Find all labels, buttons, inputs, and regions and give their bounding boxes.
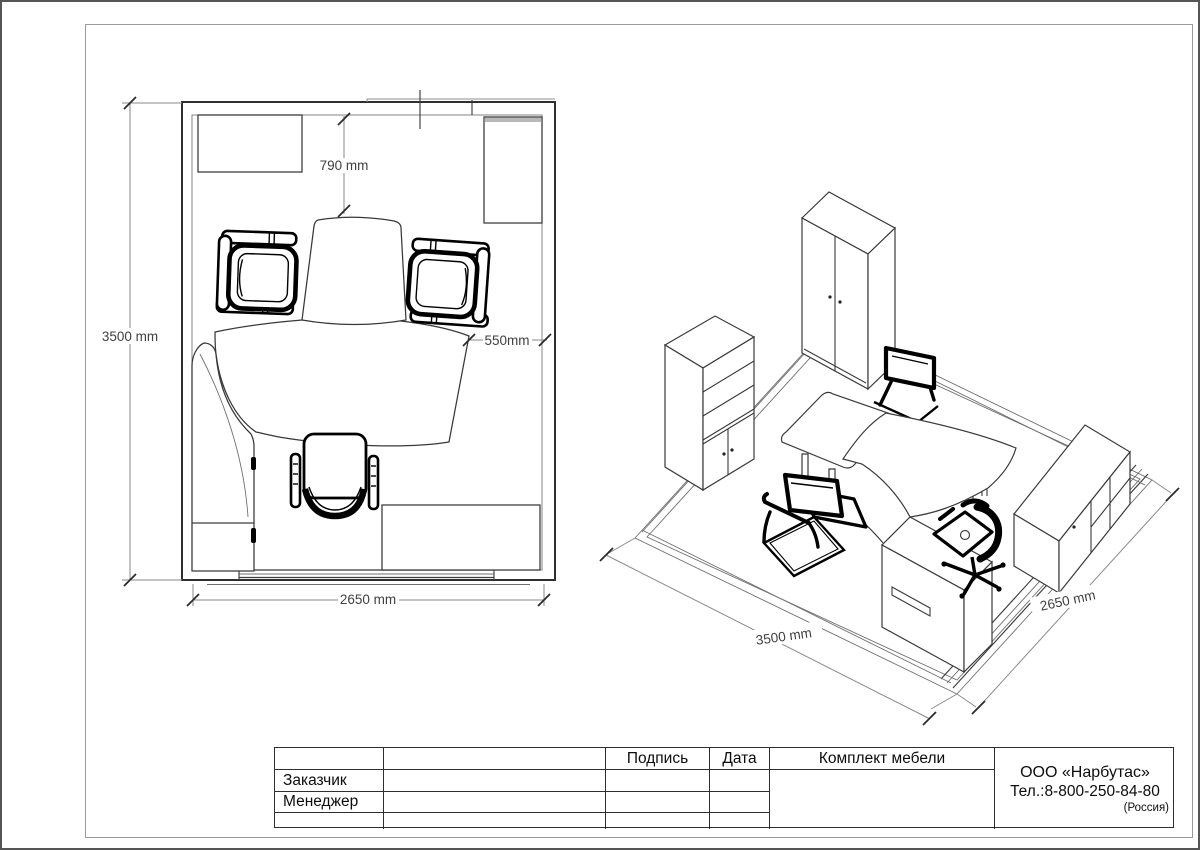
titleblock-cell-empty — [384, 748, 606, 770]
plan-dim-width-label: 2650 mm — [340, 592, 396, 607]
signature-header: Подпись — [606, 748, 710, 770]
plan-desk — [215, 318, 469, 446]
iso-wardrobe — [802, 192, 895, 389]
bookshelf-handle — [730, 448, 733, 451]
furniture-set-cell — [770, 770, 995, 829]
wardrobe-handle — [828, 295, 831, 298]
plan-dim-height-label: 3500 mm — [102, 329, 158, 344]
empty-row-cell — [275, 813, 384, 829]
date-header: Дата — [710, 748, 770, 770]
isometric-view: 3500 mm 2650 mm — [600, 192, 1179, 725]
plan-dim-clearance-label: 550mm — [484, 333, 529, 348]
credenza-handle — [1072, 525, 1075, 528]
empty-row-cell — [606, 813, 710, 829]
plan-cabinet-top-right — [484, 117, 542, 223]
iso-visitor-chair-front — [764, 475, 866, 576]
furniture-set-header: Комплект мебели — [770, 748, 995, 770]
customer-value-cell — [384, 770, 606, 792]
plan-dim-table-label: 790 mm — [320, 158, 369, 173]
drawing-canvas: 3500 mm 2650 mm 790 mm — [2, 2, 1200, 850]
company-country: (Россия) — [1124, 802, 1171, 814]
empty-row-cell — [710, 813, 770, 829]
plan-cabinet-handle — [251, 457, 256, 470]
customer-label: Заказчик — [275, 770, 384, 792]
manager-label: Менеджер — [275, 792, 384, 813]
plan-cabinet-top-left — [198, 115, 302, 172]
wardrobe-handle — [838, 300, 841, 303]
plan-credenza — [382, 505, 540, 570]
title-block: Подпись Дата Комплект мебели ООО «Нарбут… — [274, 747, 1174, 828]
manager-date-cell — [710, 792, 770, 813]
iso-bookshelf — [665, 316, 754, 490]
iso-credenza — [1014, 425, 1130, 593]
company-name: ООО «Нарбутас» — [1020, 764, 1150, 782]
customer-date-cell — [710, 770, 770, 792]
seat-button — [961, 531, 970, 540]
plan-visitor-chair-right — [406, 238, 493, 326]
empty-row-cell — [384, 813, 606, 829]
floor-plan: 3500 mm 2650 mm 790 mm — [101, 90, 555, 607]
plan-meeting-table — [302, 217, 406, 324]
titleblock-cell-empty — [275, 748, 384, 770]
manager-value-cell — [384, 792, 606, 813]
bookshelf-handle — [722, 452, 725, 455]
drawing-sheet: 3500 mm 2650 mm 790 mm — [0, 0, 1200, 850]
manager-signature-cell — [606, 792, 710, 813]
plan-visitor-chair-left — [217, 231, 298, 315]
plan-window — [207, 570, 530, 585]
company-info: ООО «Нарбутас» Тел.:8-800-250-84-80 (Рос… — [995, 748, 1175, 829]
company-phone: Тел.:8-800-250-84-80 — [1010, 783, 1160, 801]
customer-signature-cell — [606, 770, 710, 792]
plan-executive-chair — [291, 434, 378, 516]
plan-cabinet-handle — [251, 528, 256, 543]
